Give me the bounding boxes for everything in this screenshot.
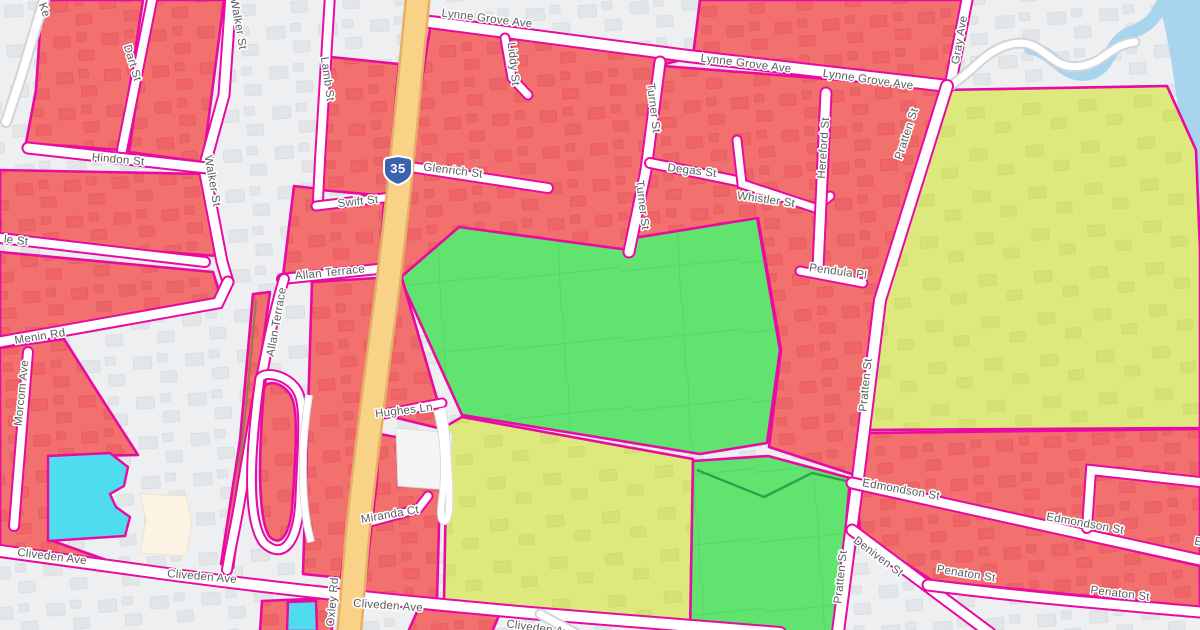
route-35-shield: 35 <box>384 156 412 185</box>
zone-green-southeast <box>690 456 850 630</box>
route-shield-number: 35 <box>390 161 405 176</box>
map-canvas[interactable]: 35 KeWalker StDart StLamb StHindon StWal… <box>0 0 1200 630</box>
map-svg: 35 KeWalker StDart StLamb StHindon StWal… <box>0 0 1200 630</box>
cream-parcel <box>140 494 192 556</box>
pool <box>287 601 317 630</box>
